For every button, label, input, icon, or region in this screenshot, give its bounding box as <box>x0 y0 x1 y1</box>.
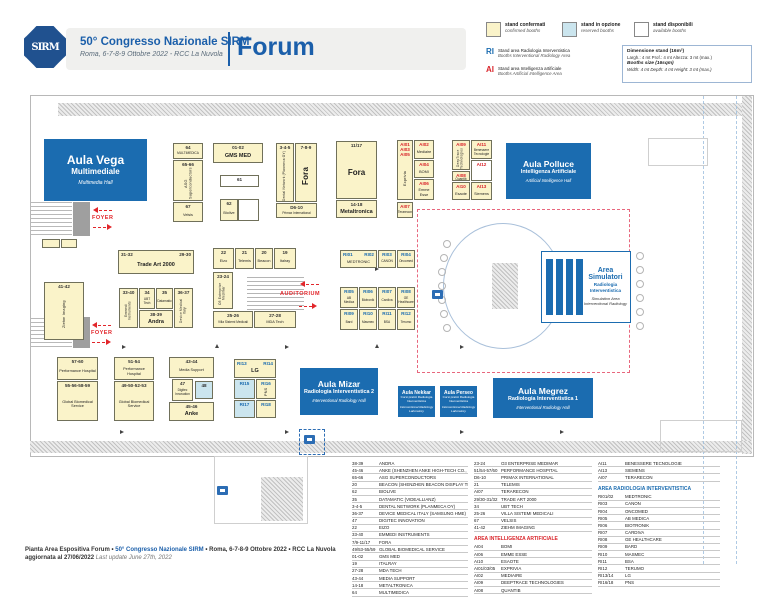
ri-code: RI <box>486 48 494 58</box>
arrow-icon <box>92 322 97 328</box>
arrow-dash <box>299 306 312 307</box>
booth-57-60: 57-60Performance Hospital <box>57 357 98 380</box>
simulator-title: Area Simulatori <box>583 267 628 281</box>
page-title: Forum <box>237 33 315 62</box>
directory-row: 62BIOLIVE <box>352 489 468 496</box>
directory-row: RI06BIOTRONIK <box>598 522 720 529</box>
column <box>636 322 644 330</box>
directory-row: RI07CARDIVA <box>598 530 720 537</box>
booth-AI12: AI12 <box>471 160 492 181</box>
directory-row: AI11BENESSERE TECNOLOGIE <box>598 460 720 467</box>
booth-49-50-52-53: 49-50-52-53Global Biomedical Service <box>114 381 154 421</box>
column <box>636 308 644 316</box>
directory-row: AI07TERARECON <box>474 489 592 496</box>
booth-RI04: RI04Oncomed <box>397 250 415 268</box>
directory-row: 33-40EMMEDI INSTRUMENTS <box>352 532 468 539</box>
service-room <box>648 138 708 166</box>
arrow-dash <box>306 284 319 285</box>
info-desk-icon <box>304 435 315 444</box>
column <box>636 266 644 274</box>
arrow-icon <box>460 430 464 434</box>
auditorium-label: AUDITORIUM <box>280 291 320 297</box>
option-label-en: reserved booths <box>581 28 620 34</box>
directory-row: AI08QUANTIB <box>474 587 592 594</box>
north-wall <box>58 103 742 116</box>
booth-AI07: AI07Terarecon <box>397 202 413 218</box>
column <box>636 280 644 288</box>
directory-row: AI10ESAOTE <box>474 558 592 565</box>
hall-aula-perseo: Aula PerseoCorsi pratici Radiologia Inte… <box>440 386 477 417</box>
booth-67: 67Velsis <box>173 202 203 222</box>
booth-AI09: AI09DeepTrace Technologies <box>452 140 470 170</box>
booth-RI09: RI09Bard <box>340 309 358 330</box>
arrow-dash <box>99 210 112 211</box>
booth-35: 35Datamatic <box>156 288 173 309</box>
booth-RI17: RI17 <box>234 400 255 418</box>
ri-directory-header: AREA RADIOLOGIA INTERVENTISTICA <box>598 486 720 492</box>
directory-row: RI08GE HEALTHCARE <box>598 537 720 544</box>
directory-row: 19ITALRAY <box>352 561 468 568</box>
directory-row: 51/54-57/60PERFORMANCE HOSPITAL <box>474 467 592 474</box>
booth-55-56-58-59: 55-56-58-59Global Biomedical Service <box>57 381 98 421</box>
hall-aula-mizar: Aula MizarRadiologia Interventistica 2In… <box>300 368 378 415</box>
column <box>636 252 644 260</box>
column <box>636 294 644 302</box>
directory-row: RI16/18PNS <box>598 580 720 587</box>
arrow-icon <box>122 345 126 349</box>
escalator <box>30 202 72 235</box>
directory-row: 27-28MDA TECH <box>352 568 468 575</box>
booth-unlabeled <box>42 239 60 248</box>
directory-row: 38-39ANDRA <box>352 460 468 467</box>
directory-row: 64MULTIMEDICA <box>352 589 468 596</box>
simulator-eng: Interventional Radiology <box>583 302 628 307</box>
booth-27-28: 27-28MDA Tech <box>254 311 296 328</box>
directory-row: 36-37DEVICE MEDICAL ITALY (SAMSUNG HME) <box>352 510 468 517</box>
booth-48: 48 <box>195 381 213 399</box>
directory-row: 47DIGITEC INNOVATION <box>352 518 468 525</box>
booth-33-40: 33-40Emmedi Instruments <box>119 288 138 328</box>
hall-aula-vega: Aula VegaMultimedialeMultimedia Hall <box>44 139 147 201</box>
available-chip <box>634 22 649 37</box>
directory-row: 49/53-55/59GLOBAL BIOMEDICAL SERVICE <box>352 546 468 553</box>
arrow-icon <box>560 430 564 434</box>
booth-45-46: 45-46Anke <box>169 402 214 421</box>
directory-row: 21TELEMIS <box>474 482 592 489</box>
booth-AI04: AI04BOMI <box>414 160 434 178</box>
booth-23-24: 23-24O3 Enterprise Medimar <box>213 272 233 309</box>
booth-RI18: RI18 <box>256 400 276 418</box>
booth-7-8-9: 7-8-9Fora <box>295 143 317 202</box>
directory-row: 41-42ZIEHM IMAGING <box>474 525 592 532</box>
directory-row: RI04ONCOMED <box>598 508 720 515</box>
arrow-dash <box>98 325 111 326</box>
arrow-dash <box>92 342 105 343</box>
booth-21: 21Telemis <box>235 248 254 269</box>
booth-RI10: RI10Masmec <box>359 309 377 330</box>
booth-31-32: 31-3229-30Trade Art 2000 <box>118 250 194 274</box>
booth-14-18: 14-18Metaltronica <box>336 200 377 218</box>
directory-row: 45-46ANKE (SHENZHEN ANKE HIGH-TECH CO., … <box>352 467 468 474</box>
booth-AI01-AI03-AI05: AI01 AI03 AI05Exprivia <box>397 140 413 200</box>
directory-row: 01-02GMS MED <box>352 553 468 560</box>
directory-row: AI01/03/05EXPRIVIA <box>474 565 592 572</box>
legend-confirmed: stand confermati confirmed booths <box>486 22 545 37</box>
directory-row: 35DATAMATIC (VIDEALLIANZ) <box>352 496 468 503</box>
directory-row: 7/9-11/17FORA <box>352 539 468 546</box>
directory-row: 20BEACON (SHENZHEN BEACON DISPLAY TECHN.… <box>352 482 468 489</box>
directory-row: RI11BSA <box>598 558 720 565</box>
booth-47: 47Digitec Innovation <box>172 379 193 401</box>
directory-row: RI03CANON <box>598 501 720 508</box>
simulator-sub: Radiologia <box>583 282 628 287</box>
simulator-bars <box>546 259 583 315</box>
sirm-logo-icon: SIRM <box>24 26 66 68</box>
arrow-icon <box>120 430 124 434</box>
booth-dimensions-box: Dimensione stand (16m²) Largh.: 4 mt Pro… <box>622 45 752 83</box>
booth-34: 34UBT Tech <box>139 288 155 309</box>
info-desk-icon <box>432 290 443 299</box>
east-wall <box>742 96 752 454</box>
booth-RI15: RI15 <box>234 379 255 399</box>
booth-61: 61 <box>220 175 259 187</box>
arrow-icon <box>460 345 464 349</box>
booth-RI05: RI05AB Medica <box>340 287 358 308</box>
booth-36-37: 36-37Device Medical Italy <box>174 288 193 328</box>
directory-row: 29/30-31/32TRADE ART 2000 <box>474 496 592 503</box>
option-chip <box>562 22 577 37</box>
booth-65-66: 65-66ASG Superconductors <box>173 160 203 201</box>
legend-ai: AI Stand area Intelligenza artificiale B… <box>486 66 562 76</box>
booth-RI11: RI11BSA <box>378 309 396 330</box>
directory-row: 65-66ASG SUPERCONDUCTORS <box>352 474 468 481</box>
confirmed-chip <box>486 22 501 37</box>
dims-en-values: Width: 4 mt Depth: 4 mt Height: 3 mt (ma… <box>627 67 747 73</box>
booth-RI16: RI16PNS <box>256 379 276 399</box>
ri-label-en: Booths Interventional Radiology Area <box>498 53 570 58</box>
footer-congress: 50° Congresso Nazionale SIRM <box>115 547 203 553</box>
booth-RI12: RI12Terumo <box>397 309 415 330</box>
directory-row: RI05AB MEDICA <box>598 515 720 522</box>
booth-64: 64MULTIMEDICA <box>173 143 203 159</box>
hall-aula-polluce: Aula PolluceIntelligenza ArtificialeArti… <box>506 143 591 199</box>
arrow-dash <box>93 227 106 228</box>
hall-aula-nekkar: Aula NekkarCorsi pratici Radiologia Inte… <box>398 386 435 417</box>
booth-RI06: RI06Biotronik <box>359 287 377 308</box>
hall-aula-megrez: Aula MegrezRadiologia Interventistica 1I… <box>493 378 593 418</box>
stair-core <box>73 202 90 236</box>
booth-RI08: RI08GE Healthcare <box>397 287 415 308</box>
booth-AI02: AI02Mediaire <box>414 140 434 159</box>
header-divider <box>228 32 230 66</box>
directory-row: AI09DEEPTRACE TECHNOLOGIES <box>474 580 592 587</box>
booth-AI10: AI10Esaote <box>452 182 470 200</box>
directory-row: RI12TERUMO <box>598 565 720 572</box>
directory-row: 43-44MEDIA SUPPORT <box>352 575 468 582</box>
footer-text: • Roma, 6-7-8-9 Ottobre 2022 • RCC La Nu… <box>204 547 336 553</box>
booth-AI08: AI08Quantib <box>452 171 470 181</box>
booth-RI03: RI03CANON <box>378 250 396 268</box>
directory-row: AI13SIEMENS <box>598 467 720 474</box>
directory-row: 67VELSIS <box>474 518 592 525</box>
booth-41-42: 41-42Ziehm Imaging <box>44 282 84 340</box>
legend-available: stand disponibili available booths <box>634 22 693 37</box>
booth-AI11: AI11Benessere Tecnologie <box>471 140 492 159</box>
arrow-icon <box>106 339 111 345</box>
ai-label-en: Booths Artificial Intelligence Area <box>498 71 562 76</box>
legend-option: stand in opzione reserved booths <box>562 22 620 37</box>
simulator-area: Area Simulatori Radiologia Interventisti… <box>541 251 631 323</box>
ai-directory-header: AREA INTELLIGENZA ARTIFICIALE <box>474 536 592 542</box>
directory-row: D6-10PRIMAX INTERNATIONAL <box>474 474 592 481</box>
footer-text: Pianta Area Espositiva Forum • <box>25 547 115 553</box>
booth-RI13: RI13RI14LG <box>234 359 276 378</box>
directory-column-3: AI11BENESSERE TECNOLOGIEAI13SIEMENSAI07T… <box>598 460 720 587</box>
directory-column-2: 23-24O3 ENTERPRISE MEDIMAR51/54-57/60PER… <box>474 460 592 594</box>
directory-row: AI02MEDIAIRE <box>474 573 592 580</box>
foyer-label: FOYER <box>92 215 113 221</box>
legend-ri: RI Stand area Radiologia Interventistica… <box>486 48 570 58</box>
directory-row: 34UBT TECH <box>474 503 592 510</box>
booth-RI07: RI07Cardiva <box>378 287 396 308</box>
technical-block <box>261 477 303 521</box>
directory-row: 25-26VILLA SISTEMI MEDICALI <box>474 510 592 517</box>
footer-caption: Pianta Area Espositiva Forum • 50° Congr… <box>25 546 355 562</box>
congress-dates: Roma, 6-7-8-9 Ottobre 2022 - RCC La Nuvo… <box>80 51 223 58</box>
booth-43-44: 43-44Media Support <box>169 357 214 378</box>
floor-plan-page: SIRM 50° Congresso Nazionale SIRM Roma, … <box>0 0 760 600</box>
booth-51-54: 51-54Performance Hospital <box>114 357 154 380</box>
directory-row: 23-24O3 ENTERPRISE MEDIMAR <box>474 460 592 467</box>
arrow-icon <box>107 224 112 230</box>
booth-unlabeled <box>238 199 259 221</box>
booth-22: 22Eizo <box>213 248 234 269</box>
booth-20: 20Beacon <box>255 248 273 269</box>
booth-11/17: 11/17Fora <box>336 141 377 199</box>
booth-unlabeled <box>61 239 77 248</box>
arrow-icon <box>300 281 305 287</box>
south-wall <box>30 441 752 453</box>
directory-row: RI01/02MEDTRONIC <box>598 494 720 501</box>
arrow-icon <box>312 303 317 309</box>
directory-column-1: 38-39ANDRA45-46ANKE (SHENZHEN ANKE HIGH-… <box>352 460 468 597</box>
arrow-icon <box>285 430 289 434</box>
info-desk-icon <box>217 486 228 495</box>
directory-row: 22EIZO <box>352 525 468 532</box>
fold-line <box>736 96 737 564</box>
directory-row: AI06EMME ESSE <box>474 551 592 558</box>
booth-62: 62Biolive <box>220 199 238 221</box>
booth-RI01: RI01RI02MEDTRONIC <box>340 250 377 268</box>
directory-row: 14-18METALTRONICA <box>352 582 468 589</box>
directory-row: RI10MASMEC <box>598 551 720 558</box>
directory-row: RI09BARD <box>598 544 720 551</box>
congress-title: 50° Congresso Nazionale SIRM <box>80 36 249 48</box>
arrow-icon <box>285 345 289 349</box>
booth-D6-10: D6-10Primax International <box>276 203 317 218</box>
directory-row: 3-4-5DENTAL NETWORK (PLANMECA OY) <box>352 503 468 510</box>
ai-code: AI <box>486 66 494 76</box>
confirmed-label-en: confirmed booths <box>505 28 545 34</box>
service-room <box>660 420 742 452</box>
footer-updated-en: Last update June 27th, 2022 <box>96 555 172 561</box>
arrow-icon <box>93 207 98 213</box>
logo-text: SIRM <box>31 42 58 53</box>
directory-row: AI07TERARECON <box>598 474 720 481</box>
booth-AI06: AI06Emme Esse <box>414 179 434 200</box>
booth-AI13: AI13Siemens <box>471 182 492 200</box>
simulator-sub: Interventistica <box>583 288 628 293</box>
booth-3-4-5: 3-4-5Dental Network (Planmeca OY) <box>276 143 294 202</box>
booth-19: 19Italray <box>274 248 296 269</box>
arrow-icon <box>375 344 379 348</box>
arrow-icon <box>215 344 219 348</box>
footer-updated-it: aggiornata al 27/06/2022 <box>25 555 96 561</box>
booth-38-39: 38-39Andra <box>139 310 173 328</box>
directory-row: AI04BOMI <box>474 544 592 551</box>
directory-row: RI13/14LG <box>598 573 720 580</box>
booth-25-26: 25-26Villa Sistemi Medicali <box>213 311 253 328</box>
foyer-label: FOYER <box>91 330 112 336</box>
available-label-en: available booths <box>653 28 693 34</box>
booth-01-02: 01-02GMS MED <box>213 143 263 163</box>
